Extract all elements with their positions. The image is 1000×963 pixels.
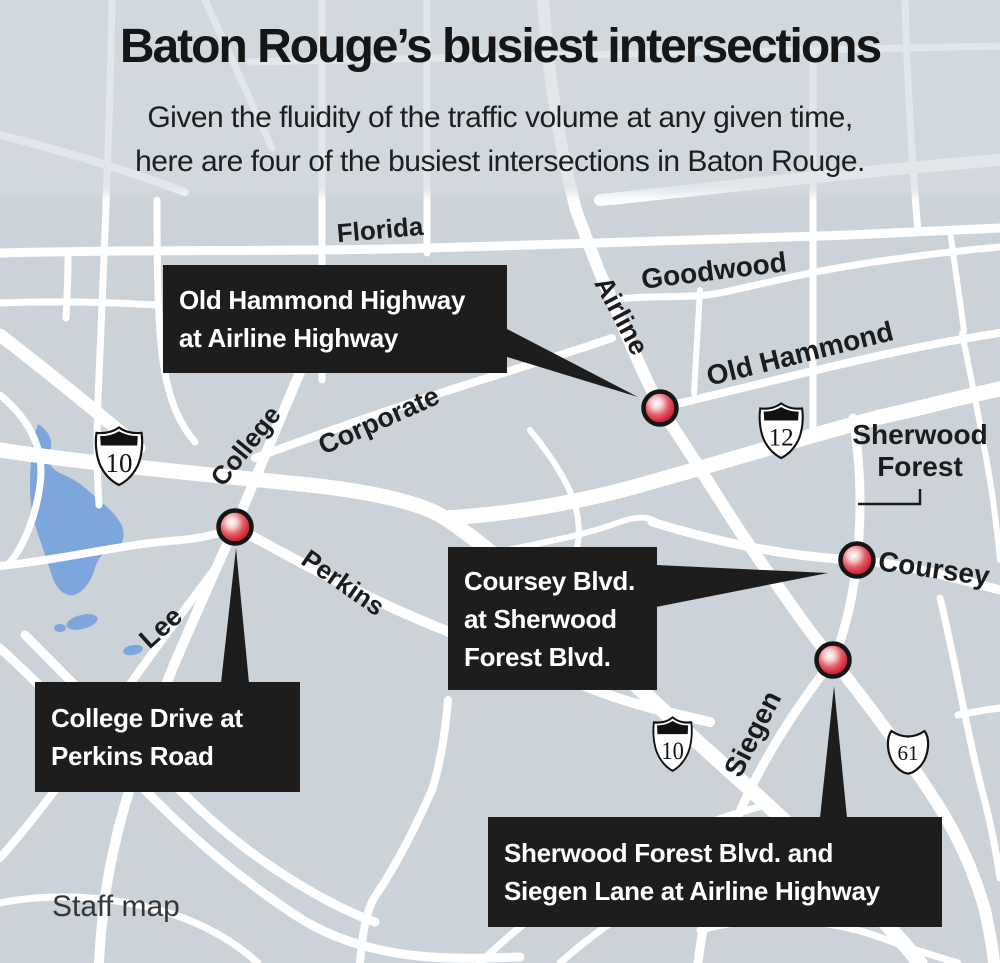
shield-number: 10 (661, 738, 683, 765)
shield-number: 61 (898, 741, 919, 765)
callout-line: Coursey Blvd. (464, 562, 649, 600)
area-label-line-1: Sherwood (852, 419, 987, 451)
marker-old-hammond-airline (644, 392, 677, 425)
callout-college-perkins: College Drive at Perkins Road (35, 682, 300, 792)
subtitle-line-2: here are four of the busiest intersectio… (0, 140, 1000, 184)
callout-line: Forest Blvd. (464, 638, 649, 676)
callout-siegen-airline: Sherwood Forest Blvd. and Siegen Lane at… (488, 817, 942, 927)
callout-line: Old Hammond Highway (179, 281, 499, 319)
callout-old-hammond-airline: Old Hammond Highway at Airline Highway (163, 265, 507, 373)
subtitle-line-1: Given the fluidity of the traffic volume… (0, 96, 1000, 140)
callout-line: Siegen Lane at Airline Highway (504, 872, 934, 910)
callout-line: Perkins Road (51, 737, 292, 775)
marker-college-perkins (219, 511, 252, 544)
subtitle: Given the fluidity of the traffic volume… (0, 96, 1000, 184)
callout-line: Sherwood Forest Blvd. and (504, 834, 934, 872)
infographic: 10 12 10 61 (0, 0, 1000, 963)
page-title: Baton Rouge’s busiest intersections (0, 18, 1000, 76)
callout-line: at Airline Highway (179, 319, 499, 357)
shield-number: 10 (106, 448, 133, 478)
marker-siegen-airline (817, 644, 850, 677)
callout-coursey-sherwood: Coursey Blvd. at Sherwood Forest Blvd. (448, 547, 657, 690)
credit-staff-map: Staff map (52, 890, 180, 924)
shield-number: 12 (769, 423, 794, 451)
callout-line: College Drive at (51, 699, 292, 737)
callout-line: at Sherwood (464, 600, 649, 638)
area-label-line-2: Forest (852, 451, 987, 483)
marker-coursey-sherwood (841, 544, 874, 577)
area-label-sherwood-forest: Sherwood Forest (852, 419, 987, 483)
